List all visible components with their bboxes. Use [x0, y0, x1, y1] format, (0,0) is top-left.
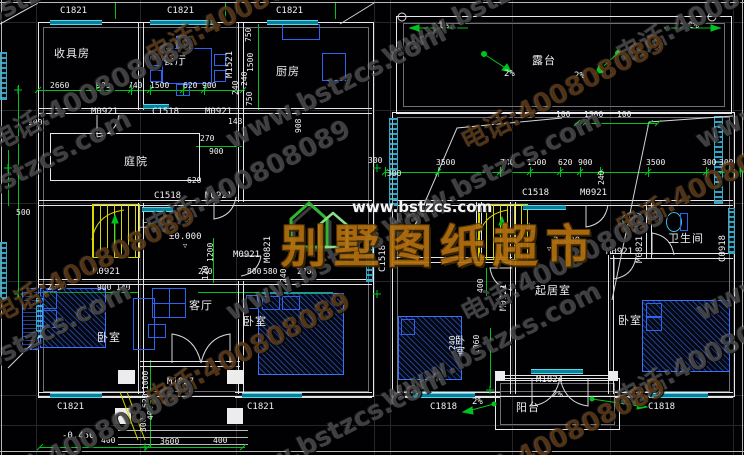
- stair-direction-label: 上: [139, 221, 148, 230]
- room-label: 卫生间: [668, 233, 704, 244]
- door-code: M0921: [233, 251, 260, 260]
- room-label: 庭院: [124, 156, 148, 167]
- dim: 900: [578, 159, 592, 167]
- dim: 240: [280, 269, 288, 283]
- dim: 620: [183, 82, 197, 90]
- dim: 2060: [473, 335, 481, 354]
- stair-direction-label: 上: [525, 225, 534, 234]
- dim: 240: [598, 171, 606, 185]
- window-code: C1818: [430, 403, 457, 412]
- dim: 140: [116, 284, 130, 292]
- room-label: 餐厅: [163, 55, 187, 66]
- dim: 270: [200, 135, 214, 143]
- room-label: 阳台: [516, 402, 540, 413]
- door-code: M0821: [636, 236, 645, 263]
- dim: 240: [232, 81, 240, 95]
- dim: 620: [187, 177, 201, 185]
- window-code: C1518: [152, 108, 179, 117]
- dim: 400: [213, 437, 227, 445]
- room-label: 收具房: [54, 48, 90, 59]
- dim: 300: [140, 418, 148, 432]
- dim: 1500: [247, 53, 255, 72]
- door-code: M0921: [205, 192, 232, 201]
- level-label: -0.450: [62, 432, 95, 441]
- dim: 908: [295, 119, 303, 133]
- dim: 3500: [646, 159, 665, 167]
- dim: 750: [246, 92, 254, 106]
- door-code: M0921: [580, 189, 607, 198]
- room-label: 客厅: [189, 300, 213, 311]
- dim: 900: [209, 148, 223, 156]
- dim: 100: [556, 111, 570, 119]
- level-label: 3.600: [553, 237, 580, 246]
- window-code: C1518: [379, 245, 388, 272]
- dim: 1200: [207, 243, 215, 262]
- dim: 750: [245, 28, 253, 42]
- dim: 2660: [50, 82, 69, 90]
- dim: 143: [228, 118, 242, 126]
- level-triangle-icon: ▽: [183, 243, 187, 250]
- level-triangle-icon: ▽: [547, 246, 551, 253]
- dim: 400: [101, 437, 115, 445]
- dim: 2660: [47, 284, 66, 292]
- dim: 740: [128, 82, 142, 90]
- dim: 300: [368, 157, 382, 165]
- dim: 1300: [584, 111, 603, 119]
- dim: 240: [198, 268, 212, 276]
- window-code: C1821: [167, 7, 194, 16]
- dim: 900: [96, 82, 110, 90]
- level-label: ±0.000: [169, 233, 202, 242]
- drain-circle-icons: [398, 13, 716, 21]
- dim: 240: [241, 72, 249, 86]
- dim: 300: [387, 170, 401, 178]
- dim: 3500: [436, 159, 455, 167]
- dim: 300: [719, 159, 733, 167]
- dim: 240: [449, 336, 457, 350]
- linework-overlay: [0, 0, 744, 455]
- dim: 900: [97, 284, 111, 292]
- dim: 2300: [297, 268, 316, 276]
- dim: 800: [247, 268, 261, 276]
- slope-label: 2%: [574, 72, 585, 81]
- door-code: M1827: [167, 378, 194, 387]
- dim: 620: [558, 159, 572, 167]
- room-label: 卧室: [243, 316, 267, 327]
- slope-label: 1%: [438, 22, 449, 31]
- door-code: M1824: [536, 376, 563, 385]
- room-label: 卧室: [618, 315, 642, 326]
- window-code: C1818: [648, 403, 675, 412]
- dim: 400: [147, 406, 155, 420]
- door-code: M0821: [264, 236, 273, 263]
- dim: 100: [617, 111, 631, 119]
- window-code: C1518: [154, 192, 181, 201]
- dim: 300: [702, 159, 716, 167]
- dim: 580: [263, 268, 277, 276]
- dim: 1500: [527, 159, 546, 167]
- floor-plan-sheet: C1821C1821C1821收具房餐厅M1521厨房7501500240750…: [0, 0, 744, 455]
- door-code: M0921: [606, 248, 633, 257]
- door-code: M0921: [93, 268, 120, 277]
- slope-label: 2%: [552, 391, 563, 400]
- slope-label: 2%: [504, 70, 515, 79]
- dim: 1500: [150, 82, 169, 90]
- room-label: 厨房: [276, 66, 300, 77]
- dim: 400: [477, 279, 485, 293]
- window-code: C1518: [522, 189, 549, 198]
- dim: 1000: [142, 371, 150, 390]
- slope-label: 1%: [688, 22, 699, 31]
- slope-label: 2%: [472, 398, 483, 407]
- room-label: 露台: [532, 55, 556, 66]
- room-label: 起居室: [535, 285, 571, 296]
- window-code: C0918: [719, 235, 728, 262]
- dim: 740: [500, 159, 514, 167]
- door-code: M1521: [226, 51, 235, 78]
- door-code: M0921: [205, 108, 232, 117]
- dim: 900: [202, 82, 216, 90]
- room-label: 卧室: [97, 332, 121, 343]
- window-code: C1821: [276, 7, 303, 16]
- window-code: C1821: [57, 403, 84, 412]
- dim: 900: [28, 119, 42, 127]
- door-code: M0921: [91, 108, 118, 117]
- window-code: C1821: [60, 7, 87, 16]
- door-code: M0921: [500, 284, 509, 311]
- window-code: C1821: [247, 403, 274, 412]
- dim: 500: [16, 209, 30, 217]
- dim: 3600: [160, 438, 179, 446]
